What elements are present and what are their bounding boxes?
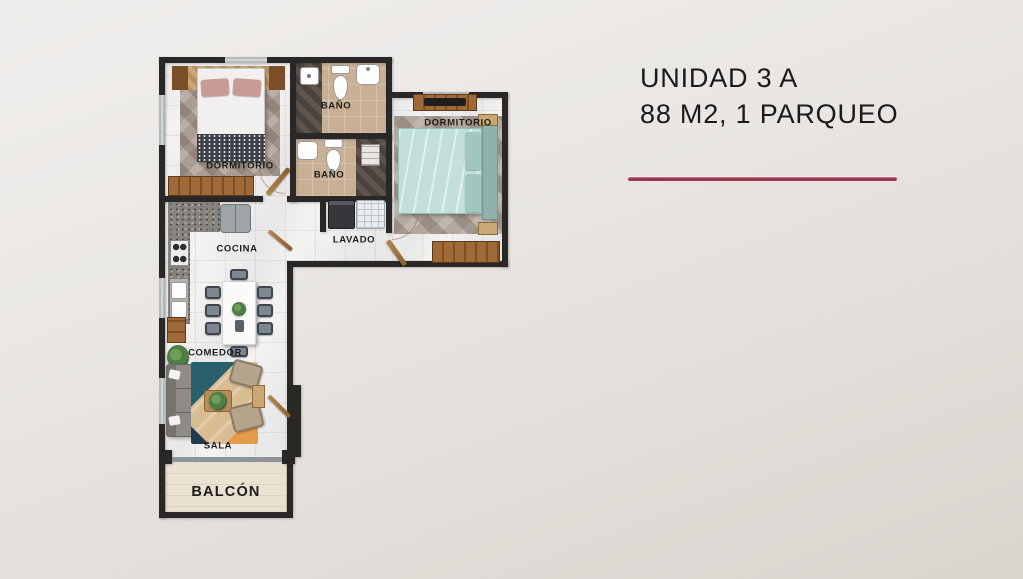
sala-label: SALA	[204, 441, 232, 452]
dorm1-nightstand-left	[172, 66, 188, 90]
kitchen-sink-basin-1	[171, 282, 187, 299]
dorm2-pillow-top	[465, 132, 481, 170]
dining-chair-left-1	[205, 286, 221, 299]
window-sala-left	[159, 378, 165, 424]
dining-cabinet	[167, 317, 186, 343]
dorm2-pillow-bottom	[465, 174, 481, 212]
side-console	[252, 385, 265, 408]
comedor-label: COMEDOR	[188, 348, 242, 359]
dining-table-decor	[235, 320, 244, 332]
dorm1-pillow-left	[200, 78, 229, 97]
wall-dorm1-banos	[290, 57, 296, 202]
window-dorm1-left	[159, 95, 165, 145]
dining-chair-right-2	[257, 304, 273, 317]
bano1-sink-faucet	[366, 67, 370, 71]
dorm2-headboard	[482, 124, 498, 220]
balcony-sliding-door[interactable]	[172, 457, 282, 462]
dorm1-closet	[168, 176, 254, 196]
bano1-label: BAÑO	[321, 101, 351, 112]
wall-banos-dorm2	[386, 57, 392, 233]
coffee-table-plant	[209, 392, 227, 410]
unit-title-line1: UNIDAD 3 A	[640, 60, 898, 96]
cocina-label: COCINA	[216, 244, 257, 255]
wall-leg-right-pillar	[287, 385, 301, 457]
dorm1-nightstand-right	[269, 66, 285, 90]
dining-chair-top	[230, 269, 248, 280]
balcony-post-right	[282, 450, 295, 464]
dorm2-closet	[432, 241, 500, 263]
sofa-pillow-2	[168, 415, 180, 426]
bano2-shelf	[361, 144, 380, 166]
kitchen-fridge	[220, 204, 251, 233]
dining-chair-right-3	[257, 322, 273, 335]
bano1-shower-drain	[307, 74, 311, 78]
bano2-sink	[297, 141, 318, 160]
unit-title-line2: 88 M2, 1 PARQUEO	[640, 96, 898, 132]
dorm1-foot-blanket	[197, 134, 265, 162]
wall-balcony-bottom	[159, 512, 293, 518]
dining-table-plant	[232, 302, 246, 316]
wall-bano-divider	[290, 133, 392, 139]
lavado-dryer	[356, 200, 385, 229]
dorm2-sidetable-bottom	[478, 222, 498, 235]
unit-title: UNIDAD 3 A 88 M2, 1 PARQUEO	[640, 60, 898, 132]
wall-top	[159, 57, 392, 63]
bano2-label: BAÑO	[314, 170, 344, 181]
wall-lavado-stub	[320, 196, 326, 232]
kitchen-stove	[170, 240, 189, 266]
kitchen-counter-top	[168, 202, 220, 232]
accent-divider-line	[628, 177, 897, 181]
bano1-toilet-tank	[331, 65, 350, 74]
balcony-post-left	[159, 450, 172, 464]
kitchen-sink-basin-2	[171, 301, 187, 318]
dormitorio2-label: DORMITORIO	[424, 118, 492, 129]
slide-canvas: UNIDAD 3 A 88 M2, 1 PARQUEO	[0, 0, 1023, 579]
dorm1-pillow-right	[232, 78, 261, 97]
bano2-toilet-tank	[324, 139, 343, 148]
dormitorio1-label: DORMITORIO	[206, 161, 274, 172]
dining-chair-right-1	[257, 286, 273, 299]
lavado-washer	[328, 200, 355, 229]
floorplan: DORMITORIO BAÑO BAÑO DORMITORIO LAVADO C…	[155, 52, 515, 518]
balcon-label: BALCÓN	[191, 484, 260, 500]
window-dorm1-top	[225, 57, 267, 63]
window-comedor-left	[159, 278, 165, 318]
dining-chair-left-2	[205, 304, 221, 317]
dining-chair-left-3	[205, 322, 221, 335]
dorm2-tv	[424, 98, 466, 106]
wall-right	[502, 92, 508, 267]
lavado-label: LAVADO	[333, 235, 375, 246]
